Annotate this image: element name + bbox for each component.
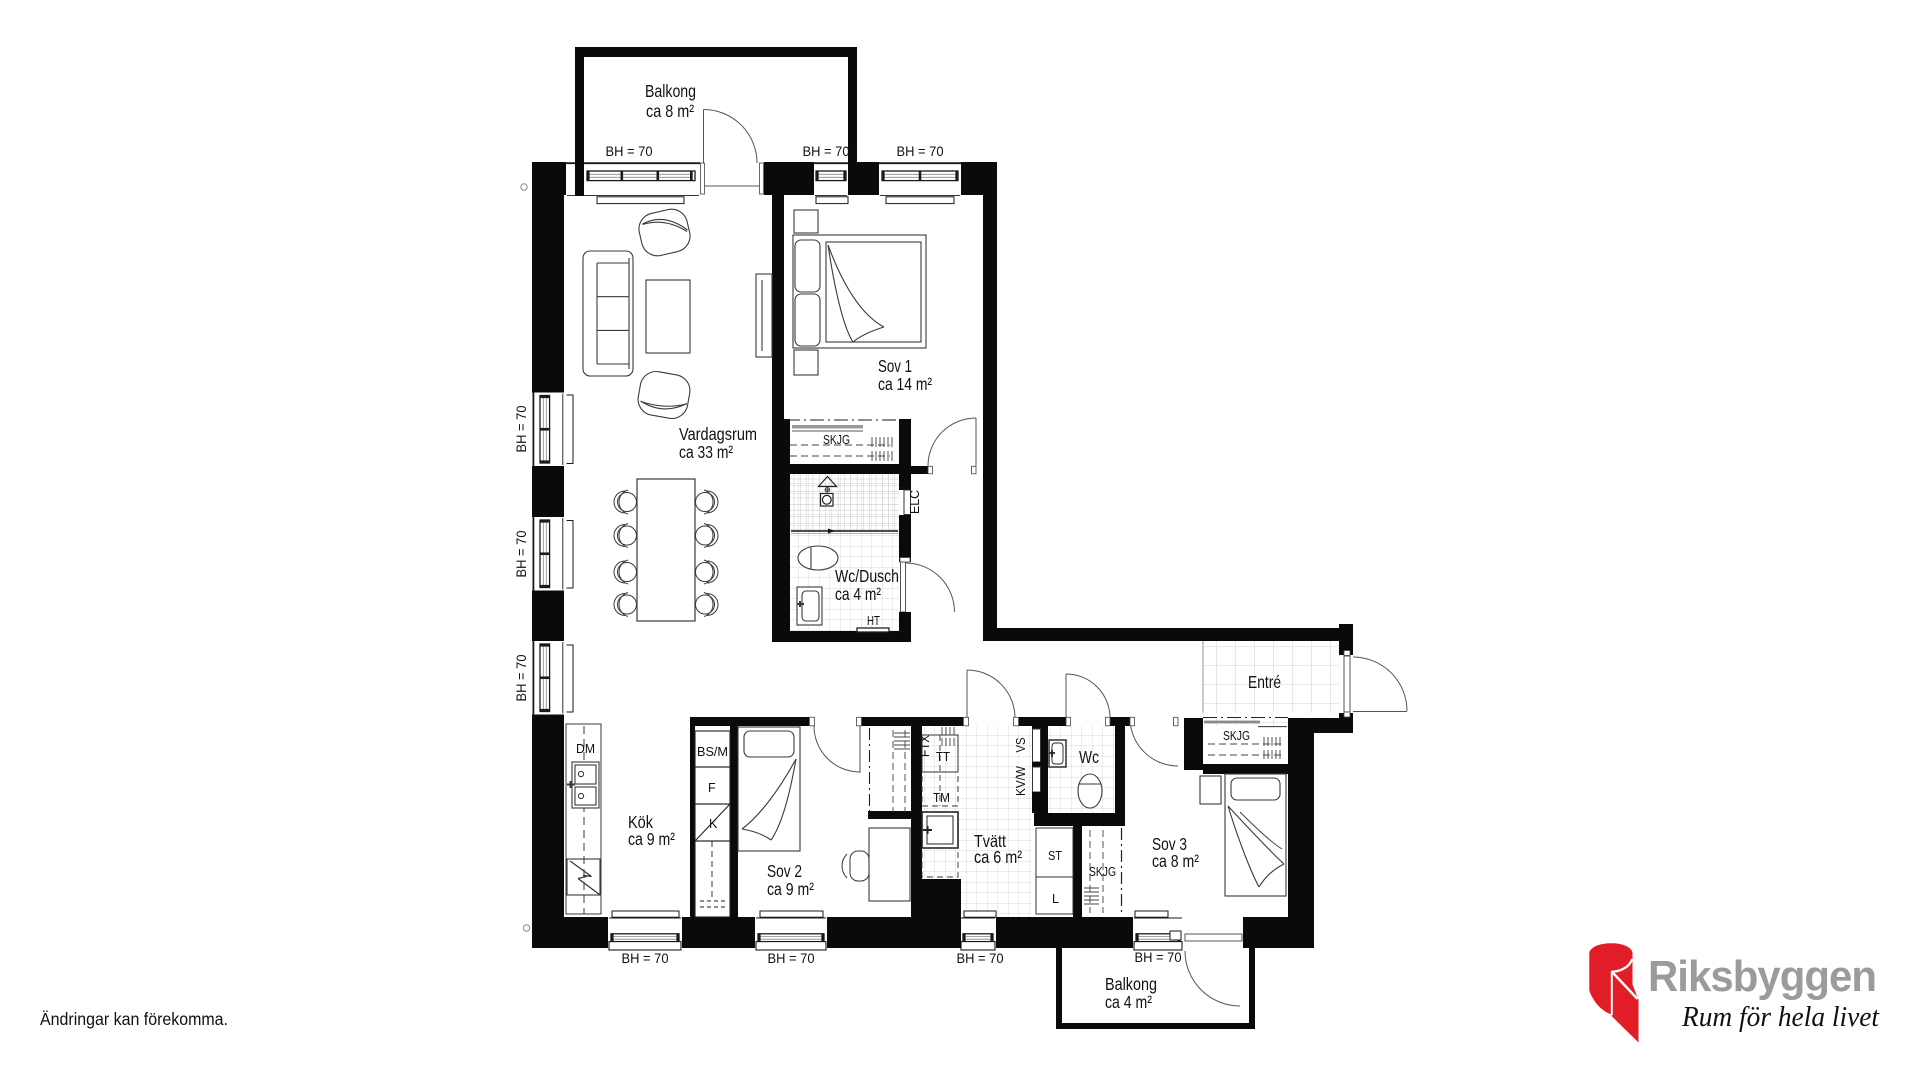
svg-text:Wc/Dusch: Wc/Dusch bbox=[835, 566, 899, 586]
svg-text:Vardagsrum: Vardagsrum bbox=[679, 424, 757, 444]
svg-text:SKJG: SKJG bbox=[1089, 865, 1116, 879]
svg-text:ST: ST bbox=[1048, 849, 1062, 863]
svg-text:BH = 70: BH = 70 bbox=[897, 144, 944, 159]
svg-text:Sov 2: Sov 2 bbox=[767, 861, 802, 881]
svg-text:BH = 70: BH = 70 bbox=[622, 951, 669, 966]
svg-text:Ändringar kan förekomma.: Ändringar kan förekomma. bbox=[40, 1009, 228, 1029]
svg-text:BH = 70: BH = 70 bbox=[514, 406, 529, 453]
svg-text:Balkong: Balkong bbox=[645, 81, 696, 101]
svg-text:L: L bbox=[1052, 892, 1059, 906]
svg-text:HT: HT bbox=[867, 614, 880, 628]
svg-text:ca 8 m²: ca 8 m² bbox=[1152, 851, 1199, 871]
svg-text:BH = 70: BH = 70 bbox=[1135, 950, 1182, 965]
svg-text:TM: TM bbox=[933, 791, 950, 805]
svg-text:Sov 1: Sov 1 bbox=[878, 356, 912, 376]
svg-text:Balkong: Balkong bbox=[1105, 974, 1157, 994]
svg-text:ca 8 m²: ca 8 m² bbox=[646, 101, 694, 121]
svg-text:ca 14 m²: ca 14 m² bbox=[878, 374, 932, 394]
svg-text:ca 6 m²: ca 6 m² bbox=[974, 847, 1022, 867]
svg-text:Wc: Wc bbox=[1079, 747, 1099, 767]
svg-text:FTX: FTX bbox=[918, 734, 932, 757]
svg-text:SKJG: SKJG bbox=[1223, 729, 1250, 743]
svg-text:BH = 70: BH = 70 bbox=[514, 655, 529, 702]
svg-text:Entré: Entré bbox=[1248, 672, 1281, 692]
svg-text:BH = 70: BH = 70 bbox=[768, 951, 815, 966]
svg-text:TT: TT bbox=[936, 750, 950, 764]
svg-text:DM: DM bbox=[576, 742, 595, 756]
svg-text:ca 4 m²: ca 4 m² bbox=[835, 584, 881, 604]
svg-text:Rum för hela livet: Rum för hela livet bbox=[1681, 1001, 1880, 1033]
svg-text:ca 9 m²: ca 9 m² bbox=[767, 879, 814, 899]
svg-text:SKJG: SKJG bbox=[823, 433, 850, 447]
svg-text:ca 4 m²: ca 4 m² bbox=[1105, 992, 1152, 1012]
svg-text:BH = 70: BH = 70 bbox=[957, 951, 1004, 966]
svg-text:BH = 70: BH = 70 bbox=[803, 144, 850, 159]
svg-text:ca 33 m²: ca 33 m² bbox=[679, 442, 733, 462]
svg-text:BS/M: BS/M bbox=[697, 745, 728, 759]
svg-text:F: F bbox=[708, 781, 716, 795]
svg-text:K: K bbox=[709, 817, 718, 831]
svg-text:Riksbyggen: Riksbyggen bbox=[1648, 952, 1876, 1001]
svg-text:ELC: ELC bbox=[908, 490, 922, 514]
svg-text:ca 9 m²: ca 9 m² bbox=[628, 829, 675, 849]
svg-text:KV/W: KV/W bbox=[1014, 766, 1028, 796]
svg-text:VS: VS bbox=[1014, 738, 1028, 753]
svg-text:BH = 70: BH = 70 bbox=[606, 144, 653, 159]
svg-text:BH = 70: BH = 70 bbox=[514, 531, 529, 578]
